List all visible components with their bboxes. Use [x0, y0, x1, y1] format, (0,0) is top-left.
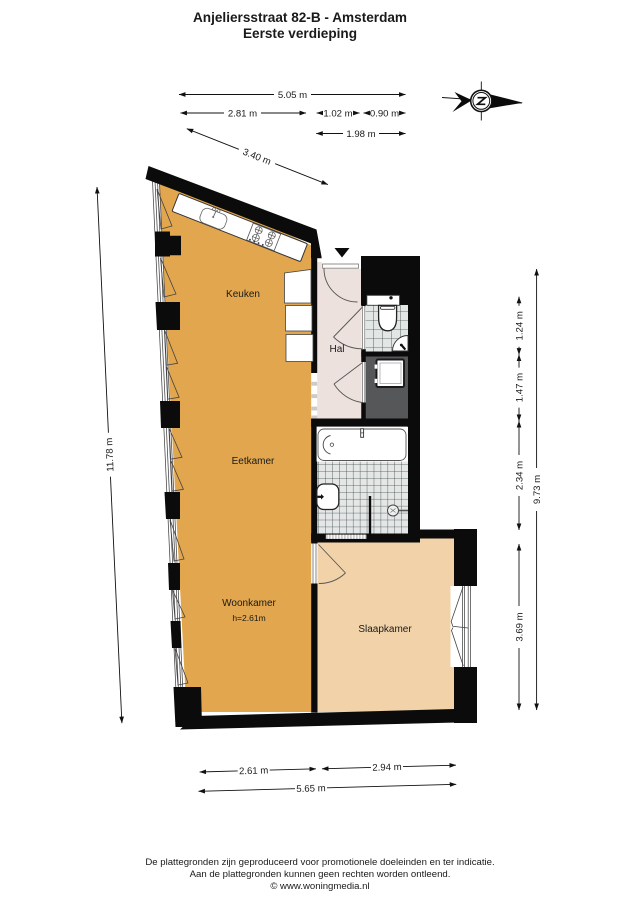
svg-text:0.90 m: 0.90 m	[370, 108, 399, 119]
svg-text:9.73 m: 9.73 m	[532, 475, 543, 504]
svg-text:5.05 m: 5.05 m	[278, 90, 307, 101]
svg-text:Hal: Hal	[329, 344, 344, 355]
svg-text:De plattegronden zijn geproduc: De plattegronden zijn geproduceerd voor …	[145, 857, 494, 868]
svg-text:1.98 m: 1.98 m	[346, 129, 375, 140]
svg-text:1.02 m: 1.02 m	[323, 108, 352, 119]
svg-text:Woonkamer: Woonkamer	[222, 598, 276, 609]
svg-text:Eetkamer: Eetkamer	[232, 456, 275, 467]
svg-text:5.65 m: 5.65 m	[296, 783, 326, 795]
svg-text:2.34 m: 2.34 m	[514, 461, 525, 490]
svg-text:2.81 m: 2.81 m	[228, 108, 257, 119]
svg-text:© www.woningmedia.nl: © www.woningmedia.nl	[270, 881, 369, 892]
svg-text:Keuken: Keuken	[226, 289, 260, 300]
svg-text:Slaapkamer: Slaapkamer	[358, 624, 412, 635]
svg-text:Anjeliersstraat 82-B - Amsterd: Anjeliersstraat 82-B - Amsterdam	[193, 10, 407, 25]
svg-text:h=2.61m: h=2.61m	[232, 613, 265, 623]
svg-text:11.78 m: 11.78 m	[104, 437, 117, 471]
svg-text:Aan de plattegronden kunnen ge: Aan de plattegronden kunnen geen rechten…	[190, 869, 451, 880]
svg-text:3.40 m: 3.40 m	[241, 147, 272, 168]
svg-text:1.47 m: 1.47 m	[514, 373, 525, 402]
svg-text:3.69 m: 3.69 m	[514, 612, 525, 641]
svg-text:1.24 m: 1.24 m	[514, 311, 525, 340]
svg-text:2.94 m: 2.94 m	[372, 762, 402, 774]
svg-text:2.61 m: 2.61 m	[239, 765, 269, 777]
svg-text:Eerste verdieping: Eerste verdieping	[243, 26, 357, 41]
